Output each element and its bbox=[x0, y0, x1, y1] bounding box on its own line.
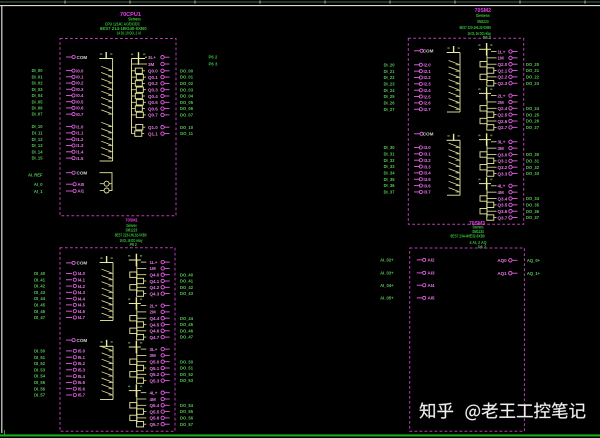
svg-text:I2.3: I2.3 bbox=[424, 82, 432, 87]
svg-text:AI_05+: AI_05+ bbox=[380, 296, 394, 301]
svg-text:Q2.2: Q2.2 bbox=[498, 75, 508, 80]
svg-text:Q4.1: Q4.1 bbox=[150, 279, 160, 284]
svg-text:DI_07: DI_07 bbox=[32, 112, 44, 117]
svg-text:2M: 2M bbox=[150, 310, 157, 315]
svg-text:DI_51: DI_51 bbox=[34, 355, 46, 360]
svg-text:DO_27: DO_27 bbox=[526, 125, 540, 130]
svg-text:P6 2: P6 2 bbox=[483, 35, 492, 40]
svg-text:I3.4: I3.4 bbox=[424, 171, 432, 176]
svg-text:I0.1: I0.1 bbox=[76, 75, 84, 80]
svg-text:I5.3: I5.3 bbox=[78, 368, 86, 373]
svg-text:P6 2: P6 2 bbox=[209, 55, 218, 60]
svg-text:Q0.3: Q0.3 bbox=[148, 88, 158, 93]
svg-text:I4.3: I4.3 bbox=[78, 290, 86, 295]
svg-text:DO_02: DO_02 bbox=[180, 81, 194, 86]
svg-text:AI_0: AI_0 bbox=[34, 182, 43, 187]
svg-text:Q3.4: Q3.4 bbox=[498, 196, 508, 201]
svg-text:I3.1: I3.1 bbox=[424, 152, 432, 157]
svg-text:Q5.0: Q5.0 bbox=[150, 360, 160, 365]
svg-text:DO_52: DO_52 bbox=[180, 372, 194, 377]
svg-text:AQ1: AQ1 bbox=[497, 271, 507, 276]
svg-text:DO_30: DO_30 bbox=[526, 152, 540, 157]
svg-text:DO_34: DO_34 bbox=[526, 196, 540, 201]
svg-text:DI_05: DI_05 bbox=[32, 99, 44, 104]
svg-text:DO_20: DO_20 bbox=[526, 62, 540, 67]
svg-text:DO_01: DO_01 bbox=[180, 75, 194, 80]
svg-text:DI_02: DI_02 bbox=[32, 81, 44, 86]
svg-text:DO_10: DO_10 bbox=[180, 125, 194, 130]
svg-text:I2.5: I2.5 bbox=[424, 94, 432, 99]
svg-text:DO_32: DO_32 bbox=[526, 165, 540, 170]
svg-text:I3.3: I3.3 bbox=[424, 164, 432, 169]
svg-text:I0.2: I0.2 bbox=[76, 81, 84, 86]
svg-text:DO_22: DO_22 bbox=[526, 75, 540, 80]
svg-text:Q0.4: Q0.4 bbox=[148, 94, 158, 99]
svg-text:Q5.2: Q5.2 bbox=[150, 372, 160, 377]
svg-text:DI_26: DI_26 bbox=[384, 101, 396, 106]
svg-text:DO_25: DO_25 bbox=[526, 112, 540, 117]
svg-text:COM: COM bbox=[77, 261, 88, 266]
svg-text:3L+: 3L+ bbox=[150, 347, 158, 352]
svg-text:I0.5: I0.5 bbox=[76, 99, 84, 104]
svg-text:Q4.4: Q4.4 bbox=[150, 316, 160, 321]
svg-text:I0.7: I0.7 bbox=[76, 112, 84, 117]
svg-text:I0.3: I0.3 bbox=[76, 87, 84, 92]
svg-text:DI_31: DI_31 bbox=[384, 151, 396, 156]
svg-text:6ES7 223-1HL32-0XB0: 6ES7 223-1HL32-0XB0 bbox=[459, 25, 491, 30]
svg-text:Q2.1: Q2.1 bbox=[498, 68, 508, 73]
svg-text:AQ_0+: AQ_0+ bbox=[527, 258, 541, 263]
svg-text:DO_07: DO_07 bbox=[180, 113, 194, 118]
svg-text:Q1.1: Q1.1 bbox=[148, 131, 158, 136]
svg-text:P6 2: P6 2 bbox=[130, 242, 138, 247]
svg-text:DI_32: DI_32 bbox=[384, 158, 396, 163]
svg-text:4M: 4M bbox=[498, 190, 505, 195]
svg-text:DO_35: DO_35 bbox=[526, 202, 540, 207]
svg-text:I2.2: I2.2 bbox=[424, 75, 432, 80]
svg-text:DO_33: DO_33 bbox=[526, 171, 540, 176]
svg-text:Q2.4: Q2.4 bbox=[498, 106, 508, 111]
svg-text:COM: COM bbox=[423, 49, 434, 54]
svg-text:I0.6: I0.6 bbox=[76, 106, 84, 111]
svg-text:Q5.6: Q5.6 bbox=[150, 416, 160, 421]
svg-text:I2.1: I2.1 bbox=[424, 69, 432, 74]
svg-text:2M: 2M bbox=[498, 100, 505, 105]
svg-text:I2.6: I2.6 bbox=[424, 101, 432, 106]
svg-text:Q0.2: Q0.2 bbox=[148, 81, 158, 86]
svg-text:I5.4: I5.4 bbox=[78, 374, 86, 379]
svg-text:Q3.0: Q3.0 bbox=[498, 152, 508, 157]
svg-text:Q5.7: Q5.7 bbox=[150, 422, 160, 427]
svg-text:DO_41: DO_41 bbox=[180, 279, 194, 284]
svg-text:DO_55: DO_55 bbox=[180, 409, 194, 414]
svg-text:DI_06: DI_06 bbox=[32, 106, 44, 111]
svg-text:Q4.2: Q4.2 bbox=[150, 285, 160, 290]
svg-text:4M: 4M bbox=[150, 397, 157, 402]
svg-text:DI_56: DI_56 bbox=[34, 386, 46, 391]
svg-text:DO_06: DO_06 bbox=[180, 106, 194, 111]
svg-text:Q2.6: Q2.6 bbox=[498, 119, 508, 124]
svg-text:I3.0: I3.0 bbox=[424, 145, 432, 150]
svg-text:6ES7 223-1HL32-0XB0: 6ES7 223-1HL32-0XB0 bbox=[115, 233, 147, 238]
svg-text:I4.0: I4.0 bbox=[78, 271, 86, 276]
svg-text:DI_42: DI_42 bbox=[34, 284, 46, 289]
svg-text:AI3: AI3 bbox=[428, 271, 436, 276]
svg-text:I5.7: I5.7 bbox=[78, 393, 86, 398]
svg-text:Q4.6: Q4.6 bbox=[150, 329, 160, 334]
svg-text:DI_36: DI_36 bbox=[384, 183, 396, 188]
svg-text:DI_30: DI_30 bbox=[384, 145, 396, 150]
svg-text:DO_37: DO_37 bbox=[526, 215, 540, 220]
svg-text:DI_34: DI_34 bbox=[384, 171, 396, 176]
svg-text:DI_46: DI_46 bbox=[34, 309, 46, 314]
svg-text:1L+: 1L+ bbox=[498, 49, 506, 54]
svg-text:DI_00: DI_00 bbox=[32, 68, 44, 73]
svg-text:AI5: AI5 bbox=[428, 296, 436, 301]
svg-text:DI_25: DI_25 bbox=[384, 94, 396, 99]
svg-text:Q0.0: Q0.0 bbox=[148, 69, 158, 74]
svg-text:Q0.5: Q0.5 bbox=[148, 100, 158, 105]
svg-text:DI_04: DI_04 bbox=[32, 93, 44, 98]
svg-text:AQ0: AQ0 bbox=[497, 258, 507, 263]
svg-text:DI_41: DI_41 bbox=[34, 277, 46, 282]
svg-text:DO_51: DO_51 bbox=[180, 366, 194, 371]
svg-text:3M: 3M bbox=[148, 62, 155, 67]
svg-text:Q5.5: Q5.5 bbox=[150, 409, 160, 414]
svg-text:I5.2: I5.2 bbox=[78, 361, 86, 366]
svg-text:Q4.0: Q4.0 bbox=[150, 273, 160, 278]
svg-text:DO_05: DO_05 bbox=[180, 100, 194, 105]
svg-text:DI_24: DI_24 bbox=[384, 88, 396, 93]
svg-text:DI_44: DI_44 bbox=[34, 296, 46, 301]
svg-text:DI_03: DI_03 bbox=[32, 87, 44, 92]
svg-text:I1.3: I1.3 bbox=[76, 143, 84, 148]
svg-text:P6 2: P6 2 bbox=[478, 244, 487, 249]
svg-text:Q2.0: Q2.0 bbox=[498, 62, 508, 67]
svg-text:DI_13: DI_13 bbox=[32, 143, 44, 148]
svg-text:DI_01: DI_01 bbox=[32, 74, 44, 79]
svg-text:DO_04: DO_04 bbox=[180, 94, 194, 99]
svg-text:Q5.1: Q5.1 bbox=[150, 366, 160, 371]
svg-text:I1.4: I1.4 bbox=[76, 150, 84, 155]
svg-text:DI_45: DI_45 bbox=[34, 303, 46, 308]
svg-text:Q3.6: Q3.6 bbox=[498, 209, 508, 214]
svg-text:I5.0: I5.0 bbox=[78, 349, 86, 354]
svg-text:DO_45: DO_45 bbox=[180, 322, 194, 327]
svg-text:Q5.3: Q5.3 bbox=[150, 378, 160, 383]
svg-text:Q5.4: Q5.4 bbox=[150, 403, 160, 408]
svg-text:DO_53: DO_53 bbox=[180, 378, 194, 383]
svg-text:I4.5: I4.5 bbox=[78, 303, 86, 308]
svg-text:DI_21: DI_21 bbox=[384, 69, 396, 74]
svg-text:I1.1: I1.1 bbox=[76, 131, 84, 136]
svg-text:DO_31: DO_31 bbox=[526, 158, 540, 163]
svg-text:I5.6: I5.6 bbox=[78, 386, 86, 391]
svg-text:Siemens: Siemens bbox=[476, 13, 490, 18]
svg-text:DI_47: DI_47 bbox=[34, 315, 46, 320]
svg-text:I4.7: I4.7 bbox=[78, 315, 86, 320]
svg-text:Q3.5: Q3.5 bbox=[498, 203, 508, 208]
svg-text:2L+: 2L+ bbox=[498, 93, 506, 98]
svg-text:COM: COM bbox=[77, 171, 88, 176]
svg-text:I4.2: I4.2 bbox=[78, 284, 86, 289]
svg-text:I4.1: I4.1 bbox=[78, 277, 86, 282]
svg-text:DI_10: DI_10 bbox=[32, 124, 44, 129]
svg-text:DI_43: DI_43 bbox=[34, 290, 46, 295]
svg-text:Q0.6: Q0.6 bbox=[148, 106, 158, 111]
svg-text:Q2.3: Q2.3 bbox=[498, 81, 508, 86]
svg-text:I1.5: I1.5 bbox=[76, 156, 84, 161]
svg-text:DO_46: DO_46 bbox=[180, 328, 194, 333]
svg-text:DI_50: DI_50 bbox=[34, 349, 46, 354]
svg-text:AI0: AI0 bbox=[78, 182, 85, 187]
svg-text:I3.5: I3.5 bbox=[424, 177, 432, 182]
svg-text:I3.6: I3.6 bbox=[424, 183, 432, 188]
svg-text:DO_40: DO_40 bbox=[180, 272, 194, 277]
svg-text:I4.4: I4.4 bbox=[78, 296, 86, 301]
svg-text:1L+: 1L+ bbox=[150, 260, 158, 265]
svg-text:DI_12: DI_12 bbox=[32, 137, 44, 142]
svg-text:DO_50: DO_50 bbox=[180, 359, 194, 364]
svg-text:DO_11: DO_11 bbox=[180, 131, 193, 136]
svg-text:I4.6: I4.6 bbox=[78, 309, 86, 314]
svg-text:AI_REF: AI_REF bbox=[28, 173, 43, 178]
svg-text:DI_20: DI_20 bbox=[384, 62, 396, 67]
svg-text:DO_21: DO_21 bbox=[526, 68, 540, 73]
svg-text:DO_42: DO_42 bbox=[180, 285, 194, 290]
svg-text:AI_1: AI_1 bbox=[34, 189, 43, 194]
svg-text:DI_33: DI_33 bbox=[384, 164, 396, 169]
svg-text:AI2: AI2 bbox=[428, 258, 436, 263]
svg-text:I3.7: I3.7 bbox=[424, 190, 432, 195]
svg-text:DI_37: DI_37 bbox=[384, 190, 396, 195]
svg-text:DO_23: DO_23 bbox=[526, 81, 540, 86]
svg-text:DO_24: DO_24 bbox=[526, 106, 540, 111]
svg-text:4L+: 4L+ bbox=[150, 391, 158, 396]
svg-text:3M: 3M bbox=[150, 353, 157, 358]
svg-text:Q4.3: Q4.3 bbox=[150, 291, 160, 296]
svg-text:P6 3: P6 3 bbox=[209, 62, 218, 67]
svg-text:AQ_1+: AQ_1+ bbox=[527, 271, 541, 276]
svg-text:6ES7 234-4HE32-0XB0: 6ES7 234-4HE32-0XB0 bbox=[451, 234, 486, 239]
svg-text:Q2.7: Q2.7 bbox=[498, 125, 508, 130]
svg-text:AI4: AI4 bbox=[428, 283, 436, 288]
svg-text:1M: 1M bbox=[150, 266, 157, 271]
svg-text:SM1223: SM1223 bbox=[477, 19, 489, 24]
svg-text:I5.5: I5.5 bbox=[78, 380, 86, 385]
svg-text:DI_35: DI_35 bbox=[384, 177, 396, 182]
svg-text:I0.4: I0.4 bbox=[76, 93, 84, 98]
svg-text:14 DI, 10 DO, 2 AI: 14 DI, 10 DO, 2 AI bbox=[117, 31, 141, 36]
svg-text:DI_23: DI_23 bbox=[384, 81, 396, 86]
svg-text:DO_54: DO_54 bbox=[180, 403, 194, 408]
svg-text:DI_53: DI_53 bbox=[34, 367, 46, 372]
svg-text:Q0.7: Q0.7 bbox=[148, 113, 158, 118]
svg-text:Q4.5: Q4.5 bbox=[150, 322, 160, 327]
svg-text:Q3.2: Q3.2 bbox=[498, 165, 508, 170]
svg-text:DI_27: DI_27 bbox=[384, 107, 396, 112]
svg-text:DI_22: DI_22 bbox=[384, 75, 396, 80]
svg-text:DO_00: DO_00 bbox=[180, 68, 194, 73]
svg-text:DI_11: DI_11 bbox=[32, 131, 43, 136]
svg-text:1M: 1M bbox=[498, 56, 505, 61]
svg-text:DO_03: DO_03 bbox=[180, 87, 194, 92]
svg-text:AI_02+: AI_02+ bbox=[380, 258, 394, 263]
svg-text:I1.0: I1.0 bbox=[76, 124, 84, 129]
svg-text:DO_36: DO_36 bbox=[526, 209, 540, 214]
svg-text:AI_03+: AI_03+ bbox=[380, 271, 394, 276]
svg-text:Q1.0: Q1.0 bbox=[148, 125, 158, 130]
svg-text:COM: COM bbox=[77, 338, 88, 343]
svg-text:I2.4: I2.4 bbox=[424, 88, 432, 93]
svg-text:I2.7: I2.7 bbox=[424, 107, 432, 112]
svg-text:DO_57: DO_57 bbox=[180, 422, 194, 427]
svg-text:Q2.5: Q2.5 bbox=[498, 112, 508, 117]
svg-text:3L+: 3L+ bbox=[498, 140, 506, 145]
svg-text:3L+: 3L+ bbox=[148, 55, 156, 60]
svg-text:DI_40: DI_40 bbox=[34, 271, 46, 276]
svg-text:Q0.1: Q0.1 bbox=[148, 75, 158, 80]
svg-text:Q3.3: Q3.3 bbox=[498, 171, 508, 176]
svg-text:I0.0: I0.0 bbox=[76, 68, 84, 73]
svg-text:4L+: 4L+ bbox=[498, 184, 506, 189]
svg-text:AI1: AI1 bbox=[78, 189, 85, 194]
svg-text:DI_52: DI_52 bbox=[34, 361, 46, 366]
svg-text:DI_14: DI_14 bbox=[32, 149, 44, 154]
svg-text:COM: COM bbox=[423, 132, 434, 137]
svg-text:DO_43: DO_43 bbox=[180, 291, 194, 296]
svg-text:Q3.7: Q3.7 bbox=[498, 215, 508, 220]
svg-text:DO_44: DO_44 bbox=[180, 316, 194, 321]
svg-text:I2.0: I2.0 bbox=[424, 63, 432, 68]
svg-text:DO_47: DO_47 bbox=[180, 335, 194, 340]
svg-text:COM: COM bbox=[77, 55, 88, 60]
svg-text:DO_56: DO_56 bbox=[180, 416, 194, 421]
svg-text:DI_55: DI_55 bbox=[34, 380, 46, 385]
svg-text:3M: 3M bbox=[498, 146, 505, 151]
svg-text:Q3.1: Q3.1 bbox=[498, 159, 508, 164]
svg-text:I1.2: I1.2 bbox=[76, 137, 84, 142]
svg-text:DI_54: DI_54 bbox=[34, 374, 46, 379]
svg-text:I3.2: I3.2 bbox=[424, 158, 432, 163]
svg-text:AI_04+: AI_04+ bbox=[380, 283, 394, 288]
svg-text:I5.1: I5.1 bbox=[78, 355, 86, 360]
svg-text:Q4.7: Q4.7 bbox=[150, 335, 160, 340]
svg-text:DO_26: DO_26 bbox=[526, 119, 540, 124]
svg-text:DI_15: DI_15 bbox=[32, 156, 44, 161]
svg-text:2L+: 2L+ bbox=[150, 303, 158, 308]
svg-text:DI_57: DI_57 bbox=[34, 393, 46, 398]
